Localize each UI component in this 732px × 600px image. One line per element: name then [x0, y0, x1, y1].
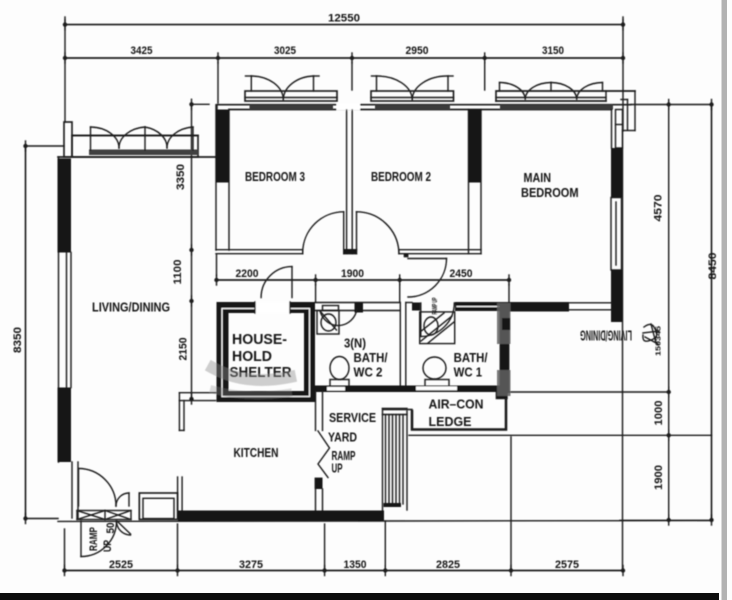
svg-text:1900: 1900 — [341, 268, 364, 280]
svg-text:UP: UP — [102, 540, 114, 552]
svg-text:3350: 3350 — [175, 164, 187, 190]
svg-text:2825: 2825 — [436, 559, 460, 571]
svg-text:HOLD: HOLD — [232, 349, 272, 365]
svg-text:12550: 12550 — [328, 13, 360, 25]
svg-text:MAIN: MAIN — [524, 171, 552, 185]
svg-text:1350: 1350 — [344, 559, 367, 571]
svg-text:2450: 2450 — [450, 268, 473, 280]
svg-text:3275: 3275 — [239, 559, 263, 571]
svg-text:1100: 1100 — [172, 260, 184, 285]
svg-text:2525: 2525 — [109, 559, 133, 571]
svg-text:2950: 2950 — [406, 45, 429, 57]
svg-text:2150: 2150 — [178, 338, 190, 361]
svg-text:3(N): 3(N) — [344, 337, 366, 351]
svg-text:WC 1: WC 1 — [454, 366, 483, 380]
svg-text:UP: UP — [332, 462, 343, 476]
svg-text:1900: 1900 — [653, 465, 665, 490]
svg-text:50: 50 — [105, 523, 117, 534]
svg-text:2575: 2575 — [555, 559, 579, 571]
svg-text:YARD: YARD — [328, 431, 357, 445]
svg-text:3150: 3150 — [542, 45, 564, 57]
svg-text:BATH/: BATH/ — [454, 351, 488, 365]
svg-text:LIVING/DINING: LIVING/DINING — [92, 301, 170, 315]
svg-text:BEDROOM: BEDROOM — [521, 186, 579, 200]
svg-text:8350: 8350 — [12, 327, 24, 353]
svg-text:BEDROOM 2: BEDROOM 2 — [371, 170, 431, 184]
svg-text:8450: 8450 — [707, 253, 719, 280]
svg-text:BEDROOM 3: BEDROOM 3 — [245, 170, 305, 184]
svg-text:WC 2: WC 2 — [354, 366, 383, 380]
svg-text:2200: 2200 — [236, 268, 259, 280]
svg-text:3425: 3425 — [131, 45, 153, 57]
svg-text:KITCHEN: KITCHEN — [234, 446, 279, 460]
svg-text:HOUSE-: HOUSE- — [232, 332, 287, 348]
svg-text:RAMP UP: RAMP UP — [432, 297, 439, 314]
svg-text:RAMP: RAMP — [88, 527, 100, 551]
svg-text:LIVING/DINING: LIVING/DINING — [580, 327, 632, 343]
svg-text:150345: 150345 — [656, 326, 663, 356]
svg-text:BATH/: BATH/ — [354, 351, 388, 365]
svg-text:1000: 1000 — [653, 401, 665, 426]
svg-text:3025: 3025 — [274, 45, 296, 57]
svg-text:LEDGE: LEDGE — [429, 415, 472, 429]
svg-text:SERVICE: SERVICE — [329, 411, 376, 425]
svg-text:AIR–CON: AIR–CON — [429, 398, 484, 412]
svg-text:4570: 4570 — [653, 195, 665, 222]
